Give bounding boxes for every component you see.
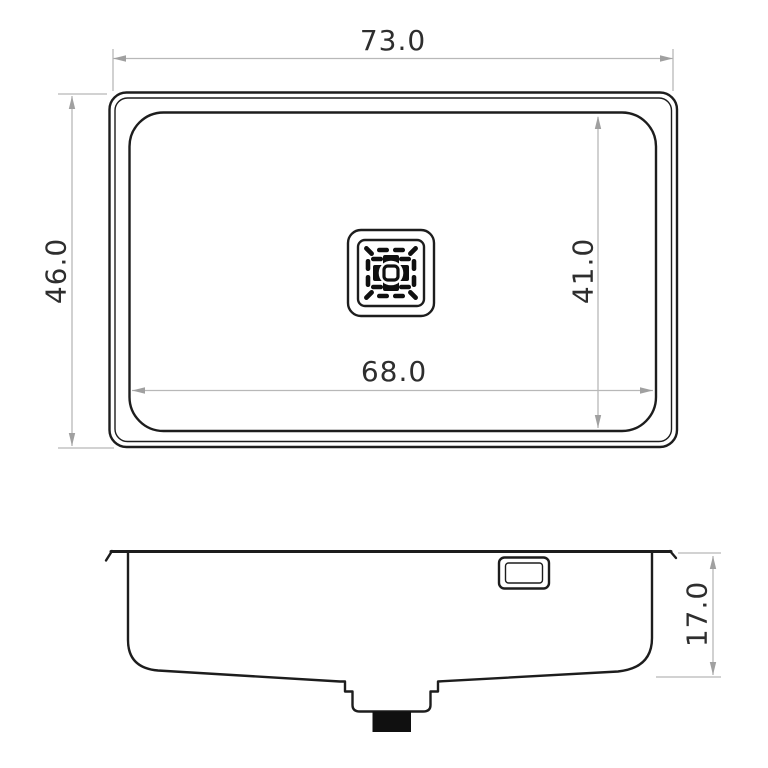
- dim-label-bowl-width: 68.0: [361, 355, 427, 388]
- dimension-overall-depth: 46.0: [40, 94, 115, 448]
- sink-dimension-drawing: 73.0 46.0 41.0 68.0 17.0: [0, 0, 768, 768]
- bowl-section-outline: [128, 552, 652, 712]
- rim-left-lip: [106, 551, 112, 561]
- arrow-down: [710, 662, 716, 675]
- overflow-hole: [499, 558, 549, 589]
- arrow-left: [113, 55, 126, 62]
- dimension-overall-width: 73.0: [113, 24, 673, 91]
- sink-side-view: [106, 551, 676, 732]
- arrow-down: [595, 415, 601, 428]
- overflow-outer: [499, 558, 549, 589]
- drain-outlet-stub: [373, 712, 412, 733]
- drain-center-ring: [384, 266, 398, 280]
- arrow-down: [69, 433, 75, 446]
- arrow-up: [69, 96, 75, 109]
- drain-grate: [348, 230, 434, 316]
- dimension-bowl-width: 68.0: [132, 355, 653, 394]
- arrow-left: [132, 387, 145, 394]
- arrow-right: [640, 387, 653, 394]
- dim-label-bowl-height: 17.0: [681, 581, 714, 647]
- dim-label-overall-width: 73.0: [360, 24, 426, 57]
- dimension-bowl-height: 17.0: [656, 553, 721, 677]
- arrow-up: [595, 116, 601, 129]
- dim-label-bowl-depth: 41.0: [567, 238, 600, 304]
- dimension-bowl-depth: 41.0: [567, 116, 602, 428]
- overflow-inner: [506, 563, 543, 583]
- technical-drawing-canvas: 73.0 46.0 41.0 68.0 17.0: [0, 0, 768, 768]
- arrow-up: [710, 556, 716, 569]
- dim-label-overall-depth: 46.0: [40, 238, 73, 304]
- arrow-right: [660, 55, 673, 62]
- rim-right-lip: [670, 551, 676, 558]
